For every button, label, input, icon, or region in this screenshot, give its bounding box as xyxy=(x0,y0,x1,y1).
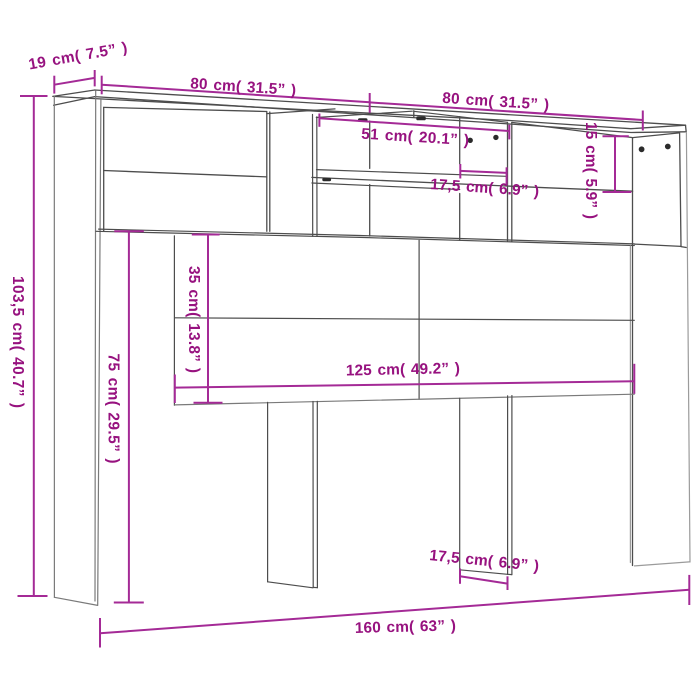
svg-text:103,5 cm( 40.7” ): 103,5 cm( 40.7” ) xyxy=(9,276,26,408)
svg-text:160 cm( 63” ): 160 cm( 63” ) xyxy=(355,617,456,637)
svg-text:15 cm( 5.9” ): 15 cm( 5.9” ) xyxy=(582,122,599,219)
svg-text:125 cm( 49.2” ): 125 cm( 49.2” ) xyxy=(346,360,460,379)
svg-text:35 cm( 13.8” ): 35 cm( 13.8” ) xyxy=(185,266,202,373)
svg-text:75 cm( 29.5” ): 75 cm( 29.5” ) xyxy=(105,354,122,464)
